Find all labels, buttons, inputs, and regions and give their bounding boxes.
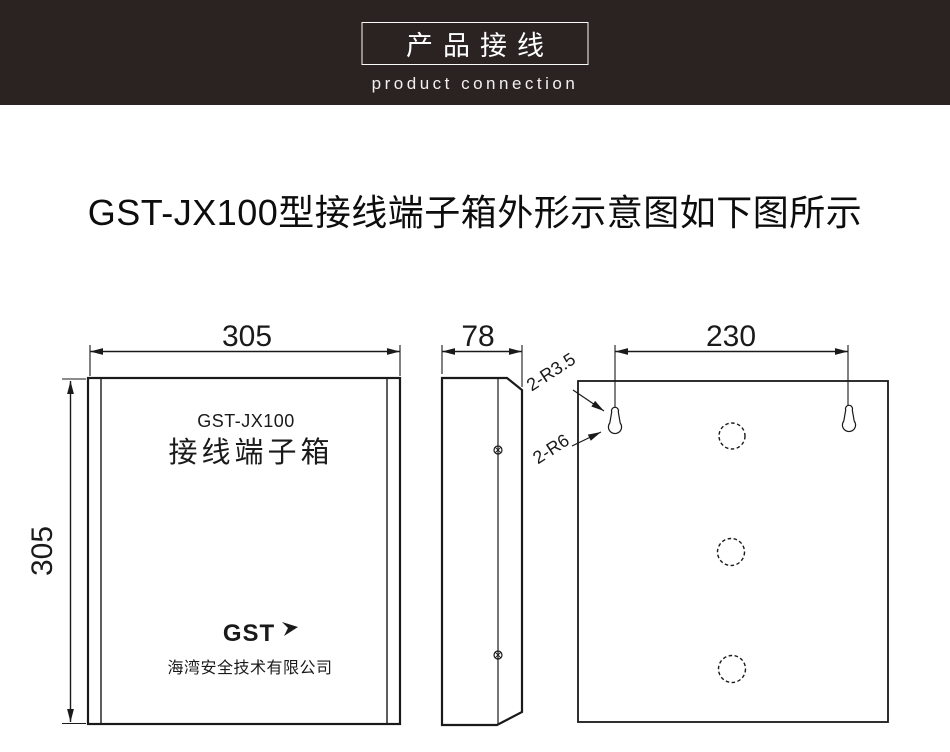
front-view-model-label: GST-JX100: [197, 411, 295, 431]
front-view-product-label: 接线端子箱: [168, 436, 333, 469]
front-view: GST-JX100 接线端子箱 GST 海湾安全技术有限公司 305 305: [26, 320, 400, 724]
keyhole-large-radius-label: 2-R6: [529, 430, 573, 468]
keyhole-small-radius-label: 2-R3.5: [523, 349, 579, 395]
back-hole-spacing-dim-value: 230: [706, 320, 756, 353]
front-height-dimension: 305: [26, 379, 86, 724]
side-depth-dim-value: 78: [461, 320, 494, 353]
front-view-company-label: 海湾安全技术有限公司: [167, 659, 332, 677]
back-hole-spacing-dimension: 230: [615, 320, 848, 407]
side-view: 78: [442, 320, 522, 725]
keyhole-large-radius-annotation: 2-R6: [529, 430, 601, 468]
gst-logo-wing-icon: [282, 622, 298, 636]
side-view-outline: [442, 378, 522, 725]
technical-drawing: GST-JX100 接线端子箱 GST 海湾安全技术有限公司 305 305: [0, 0, 950, 752]
keyhole-small-radius-annotation: 2-R3.5: [523, 349, 604, 411]
front-height-dim-value: 305: [26, 526, 59, 576]
back-view-outline: [578, 381, 888, 722]
front-width-dim-value: 305: [222, 320, 272, 353]
back-view: 230 2-R3.5 2-R6: [523, 320, 888, 722]
gst-logo-text: GST: [223, 620, 275, 647]
knockout-hole-middle: [718, 539, 745, 566]
front-width-dimension: 305: [90, 320, 400, 376]
keyhole-slot-left: [608, 407, 621, 433]
keyhole-slot-right: [842, 405, 855, 431]
knockout-hole-bottom: [719, 656, 746, 683]
gst-logo: GST: [223, 620, 298, 647]
knockout-hole-top: [719, 423, 745, 449]
